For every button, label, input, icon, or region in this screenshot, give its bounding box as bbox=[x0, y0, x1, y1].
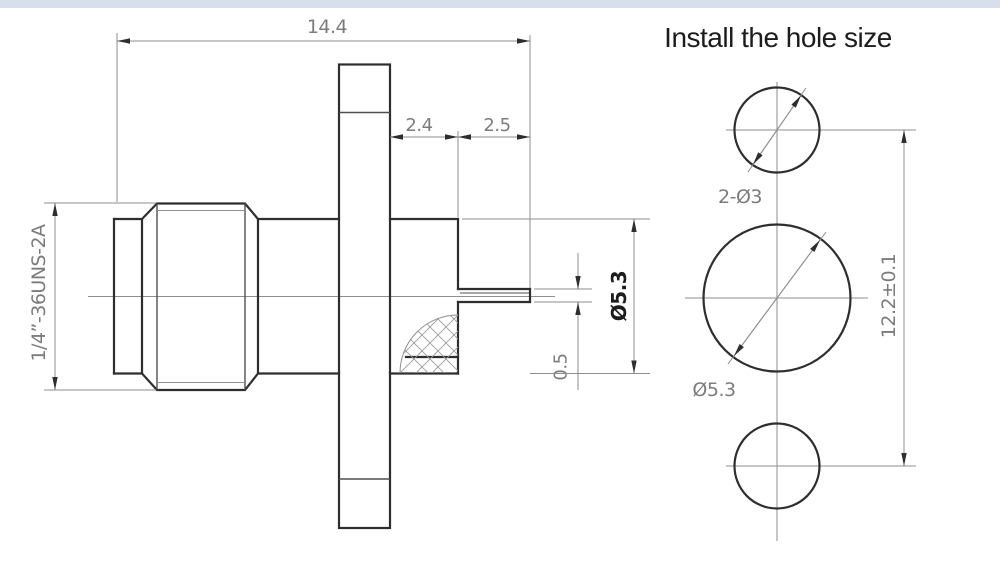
center-pin bbox=[458, 289, 530, 302]
center-hole-label: Ø5.3 bbox=[692, 379, 735, 401]
drawing-canvas: 14.4 1/4”-36UNS-2A 2.4 2.5 bbox=[0, 0, 1000, 588]
side-view: 14.4 1/4”-36UNS-2A 2.4 2.5 bbox=[28, 16, 650, 528]
mounting-holes-label: 2-Ø3 bbox=[718, 186, 762, 208]
dim-pin-diameter: 0.5 bbox=[534, 253, 592, 390]
dim-overall-length-label: 14.4 bbox=[307, 16, 348, 38]
dim-pin-diameter-label: 0.5 bbox=[551, 353, 572, 380]
page-title: Install the hole size bbox=[664, 22, 892, 53]
mounting-hole-top bbox=[726, 88, 916, 173]
dim-hole-spacing-label: 12.2±0.1 bbox=[878, 254, 900, 338]
dim-overall-length: 14.4 bbox=[117, 16, 530, 288]
mounting-hole-bottom bbox=[726, 424, 916, 509]
dim-flange-offset-label: 2.4 bbox=[405, 115, 432, 136]
hole-view: Install the hole size 2-Ø3 Ø5.3 bbox=[664, 22, 916, 541]
thread-spec-label: 1/4”-36UNS-2A bbox=[28, 224, 50, 362]
dim-pin-protrusion-label: 2.5 bbox=[483, 115, 510, 136]
dim-pin-protrusion: 2.5 bbox=[458, 115, 530, 137]
dim-hole-spacing: 12.2±0.1 bbox=[878, 130, 904, 466]
dim-flange-offset: 2.4 bbox=[390, 115, 458, 217]
dim-body-diameter-label: Ø5.3 bbox=[607, 271, 631, 321]
technical-drawing: 14.4 1/4”-36UNS-2A 2.4 2.5 bbox=[0, 0, 1000, 588]
